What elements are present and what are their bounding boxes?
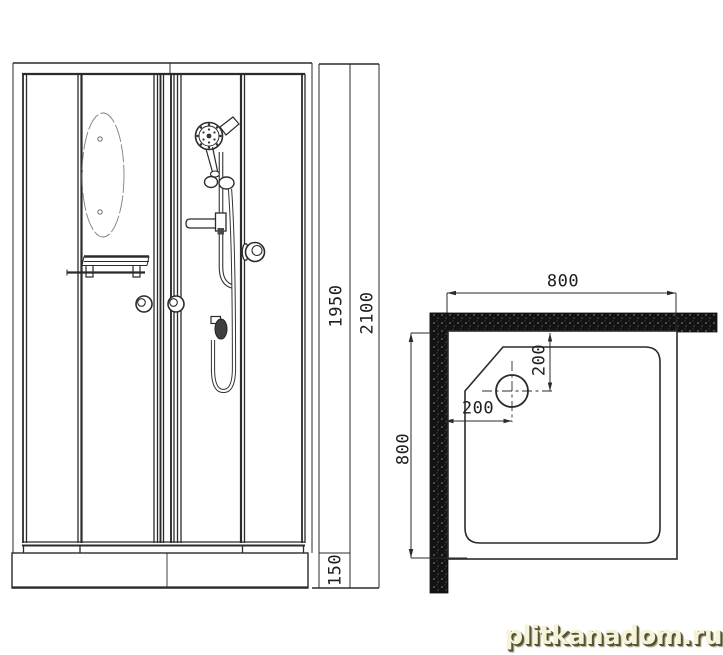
spout-arm bbox=[186, 213, 226, 235]
dim-label-depth: 800 bbox=[396, 433, 413, 465]
site-watermark: plitkanadom.ru bbox=[504, 621, 722, 651]
shower-head bbox=[196, 117, 240, 177]
wall-back bbox=[430, 313, 717, 332]
hand-shower bbox=[215, 319, 227, 339]
plan-view-drawing bbox=[409, 291, 717, 593]
shelf bbox=[67, 257, 149, 278]
glass-panels bbox=[22, 74, 305, 553]
dim-label-drain-offset-back: 200 bbox=[532, 344, 549, 376]
dim-label-cabin-height: 1950 bbox=[329, 285, 346, 328]
dim-label-width: 800 bbox=[547, 274, 579, 291]
cabin-frame bbox=[13, 63, 312, 553]
door-handle-left bbox=[136, 296, 152, 312]
door-handle-right bbox=[168, 296, 184, 312]
mirror bbox=[82, 113, 124, 237]
shower-tray-front bbox=[12, 553, 308, 588]
dim-label-total-height: 2100 bbox=[360, 292, 377, 335]
wall-side bbox=[430, 313, 448, 593]
dim-label-tray-height: 150 bbox=[328, 554, 345, 586]
front-view-drawing bbox=[12, 63, 379, 588]
shower-tray-plan bbox=[448, 331, 677, 559]
faucet-knob bbox=[242, 243, 264, 262]
dim-label-drain-offset-side: 200 bbox=[462, 401, 494, 418]
drawing-canvas: 1950 2100 150 800 800 200 200 plitkanado… bbox=[0, 0, 723, 655]
